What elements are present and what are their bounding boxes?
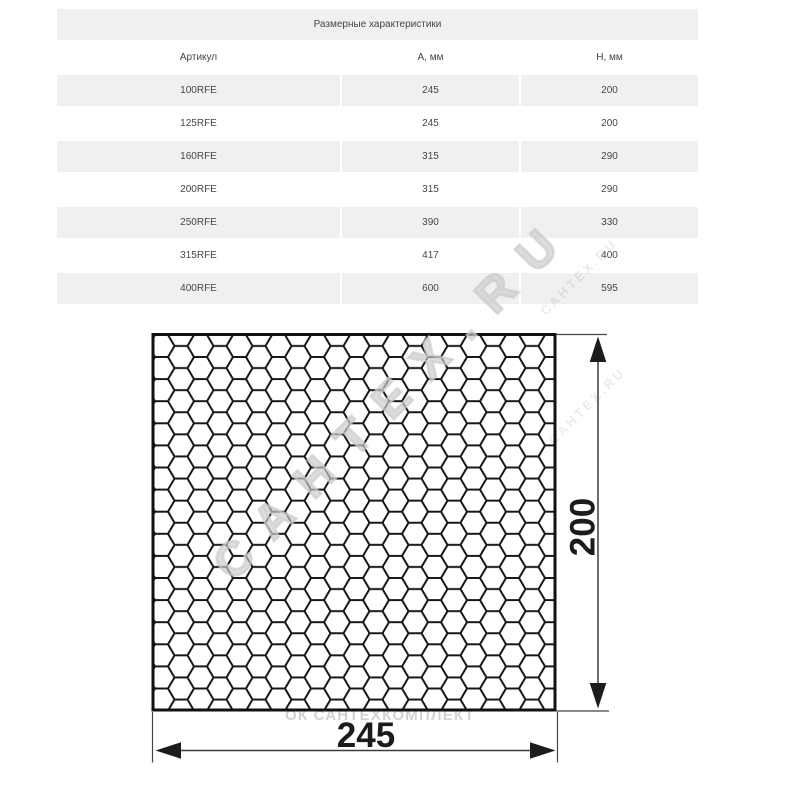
svg-text:200: 200 [564,498,603,556]
svg-text:САНТЕХ.RU: САНТЕХ.RU [545,364,628,447]
svg-text:245: 245 [337,716,395,755]
